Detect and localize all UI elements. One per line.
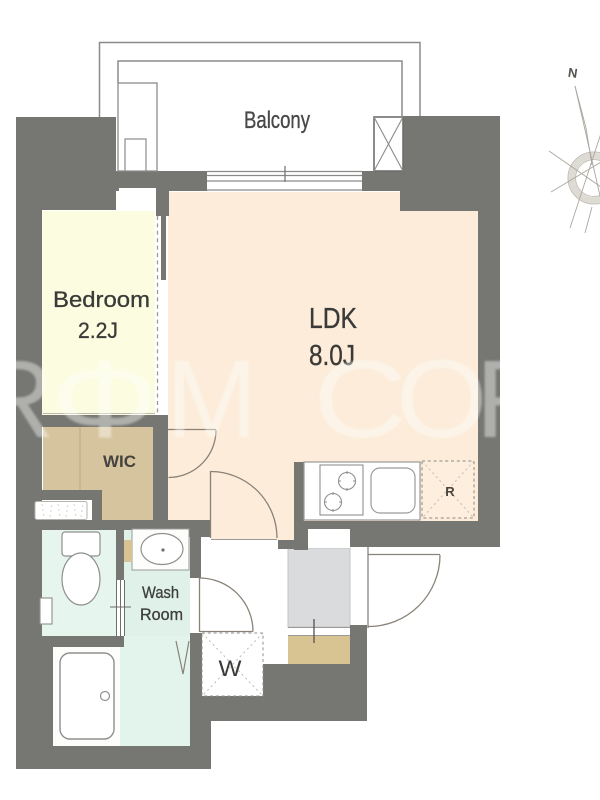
- svg-text:Room: Room: [140, 606, 183, 624]
- svg-text:M: M: [166, 338, 258, 461]
- svg-text:R: R: [445, 484, 455, 499]
- svg-text:O: O: [396, 339, 488, 462]
- svg-text:LDK: LDK: [309, 303, 358, 335]
- svg-text:W: W: [219, 656, 242, 681]
- svg-text:C: C: [313, 338, 408, 461]
- svg-text:Bedroom: Bedroom: [53, 287, 150, 312]
- svg-text:Wash: Wash: [142, 584, 179, 602]
- svg-text:Balcony: Balcony: [244, 107, 310, 134]
- svg-text:R: R: [0, 338, 54, 461]
- svg-text:R: R: [475, 339, 560, 462]
- svg-text:Φ: Φ: [51, 338, 159, 461]
